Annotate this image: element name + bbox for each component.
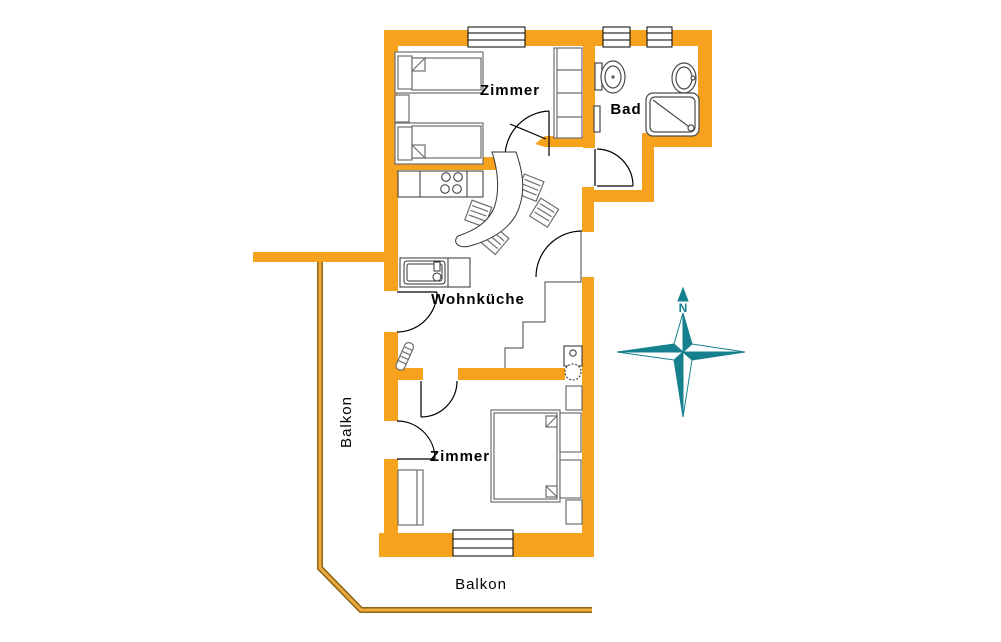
door-room-top bbox=[505, 111, 549, 157]
compass-north-label: N bbox=[679, 301, 688, 315]
wall-segment bbox=[582, 187, 594, 232]
room-label-wohnkueche: Wohnküche bbox=[431, 291, 525, 308]
kitchen-layer bbox=[398, 152, 523, 287]
wall-segment bbox=[384, 332, 398, 421]
chair-icon bbox=[530, 198, 559, 227]
room-label-zimmer-bottom: Zimmer bbox=[430, 448, 490, 465]
wall-segment bbox=[698, 30, 712, 147]
boiler-icon bbox=[564, 346, 582, 380]
single-bed-icon bbox=[395, 123, 483, 164]
wall-segment bbox=[582, 277, 594, 533]
wall-segment bbox=[594, 190, 654, 202]
nightstand-icon bbox=[395, 95, 409, 122]
balcony-label-left: Balkon bbox=[338, 396, 355, 448]
wall-segment bbox=[379, 533, 453, 557]
floor-plan-drawing: N Zimmer Bad Wohnküche Zimmer Balkon Bal… bbox=[0, 0, 1001, 642]
balcony-divider-wall bbox=[253, 252, 384, 262]
wardrobe-icon bbox=[554, 48, 582, 138]
door-bathroom bbox=[595, 149, 633, 186]
toilet-icon bbox=[595, 61, 625, 93]
wall-segment bbox=[513, 533, 594, 557]
floor-plan-page: N Zimmer Bad Wohnküche Zimmer Balkon Bal… bbox=[0, 0, 1001, 642]
washbasin-icon bbox=[672, 63, 696, 93]
north-arrow-icon bbox=[678, 288, 688, 301]
balcony-label-bottom: Balkon bbox=[455, 576, 507, 593]
single-bed-icon bbox=[395, 52, 483, 93]
room-label-bad: Bad bbox=[610, 101, 641, 118]
radiator-icon bbox=[594, 106, 600, 132]
window bbox=[603, 27, 630, 47]
wall-segment bbox=[630, 30, 647, 46]
wardrobe-icon bbox=[398, 470, 423, 525]
room-label-zimmer-top: Zimmer bbox=[480, 82, 540, 99]
stove-icon bbox=[398, 171, 483, 197]
shower-icon bbox=[646, 93, 699, 136]
double-bed-icon bbox=[491, 386, 582, 524]
window bbox=[453, 530, 513, 556]
window bbox=[468, 27, 525, 47]
wall-segment bbox=[384, 459, 398, 533]
window bbox=[647, 27, 672, 47]
door-entrance bbox=[536, 231, 582, 277]
wall-segment bbox=[583, 30, 595, 148]
wall-segment bbox=[458, 368, 565, 380]
door-room-bottom bbox=[421, 381, 457, 417]
sink-icon bbox=[400, 258, 470, 287]
